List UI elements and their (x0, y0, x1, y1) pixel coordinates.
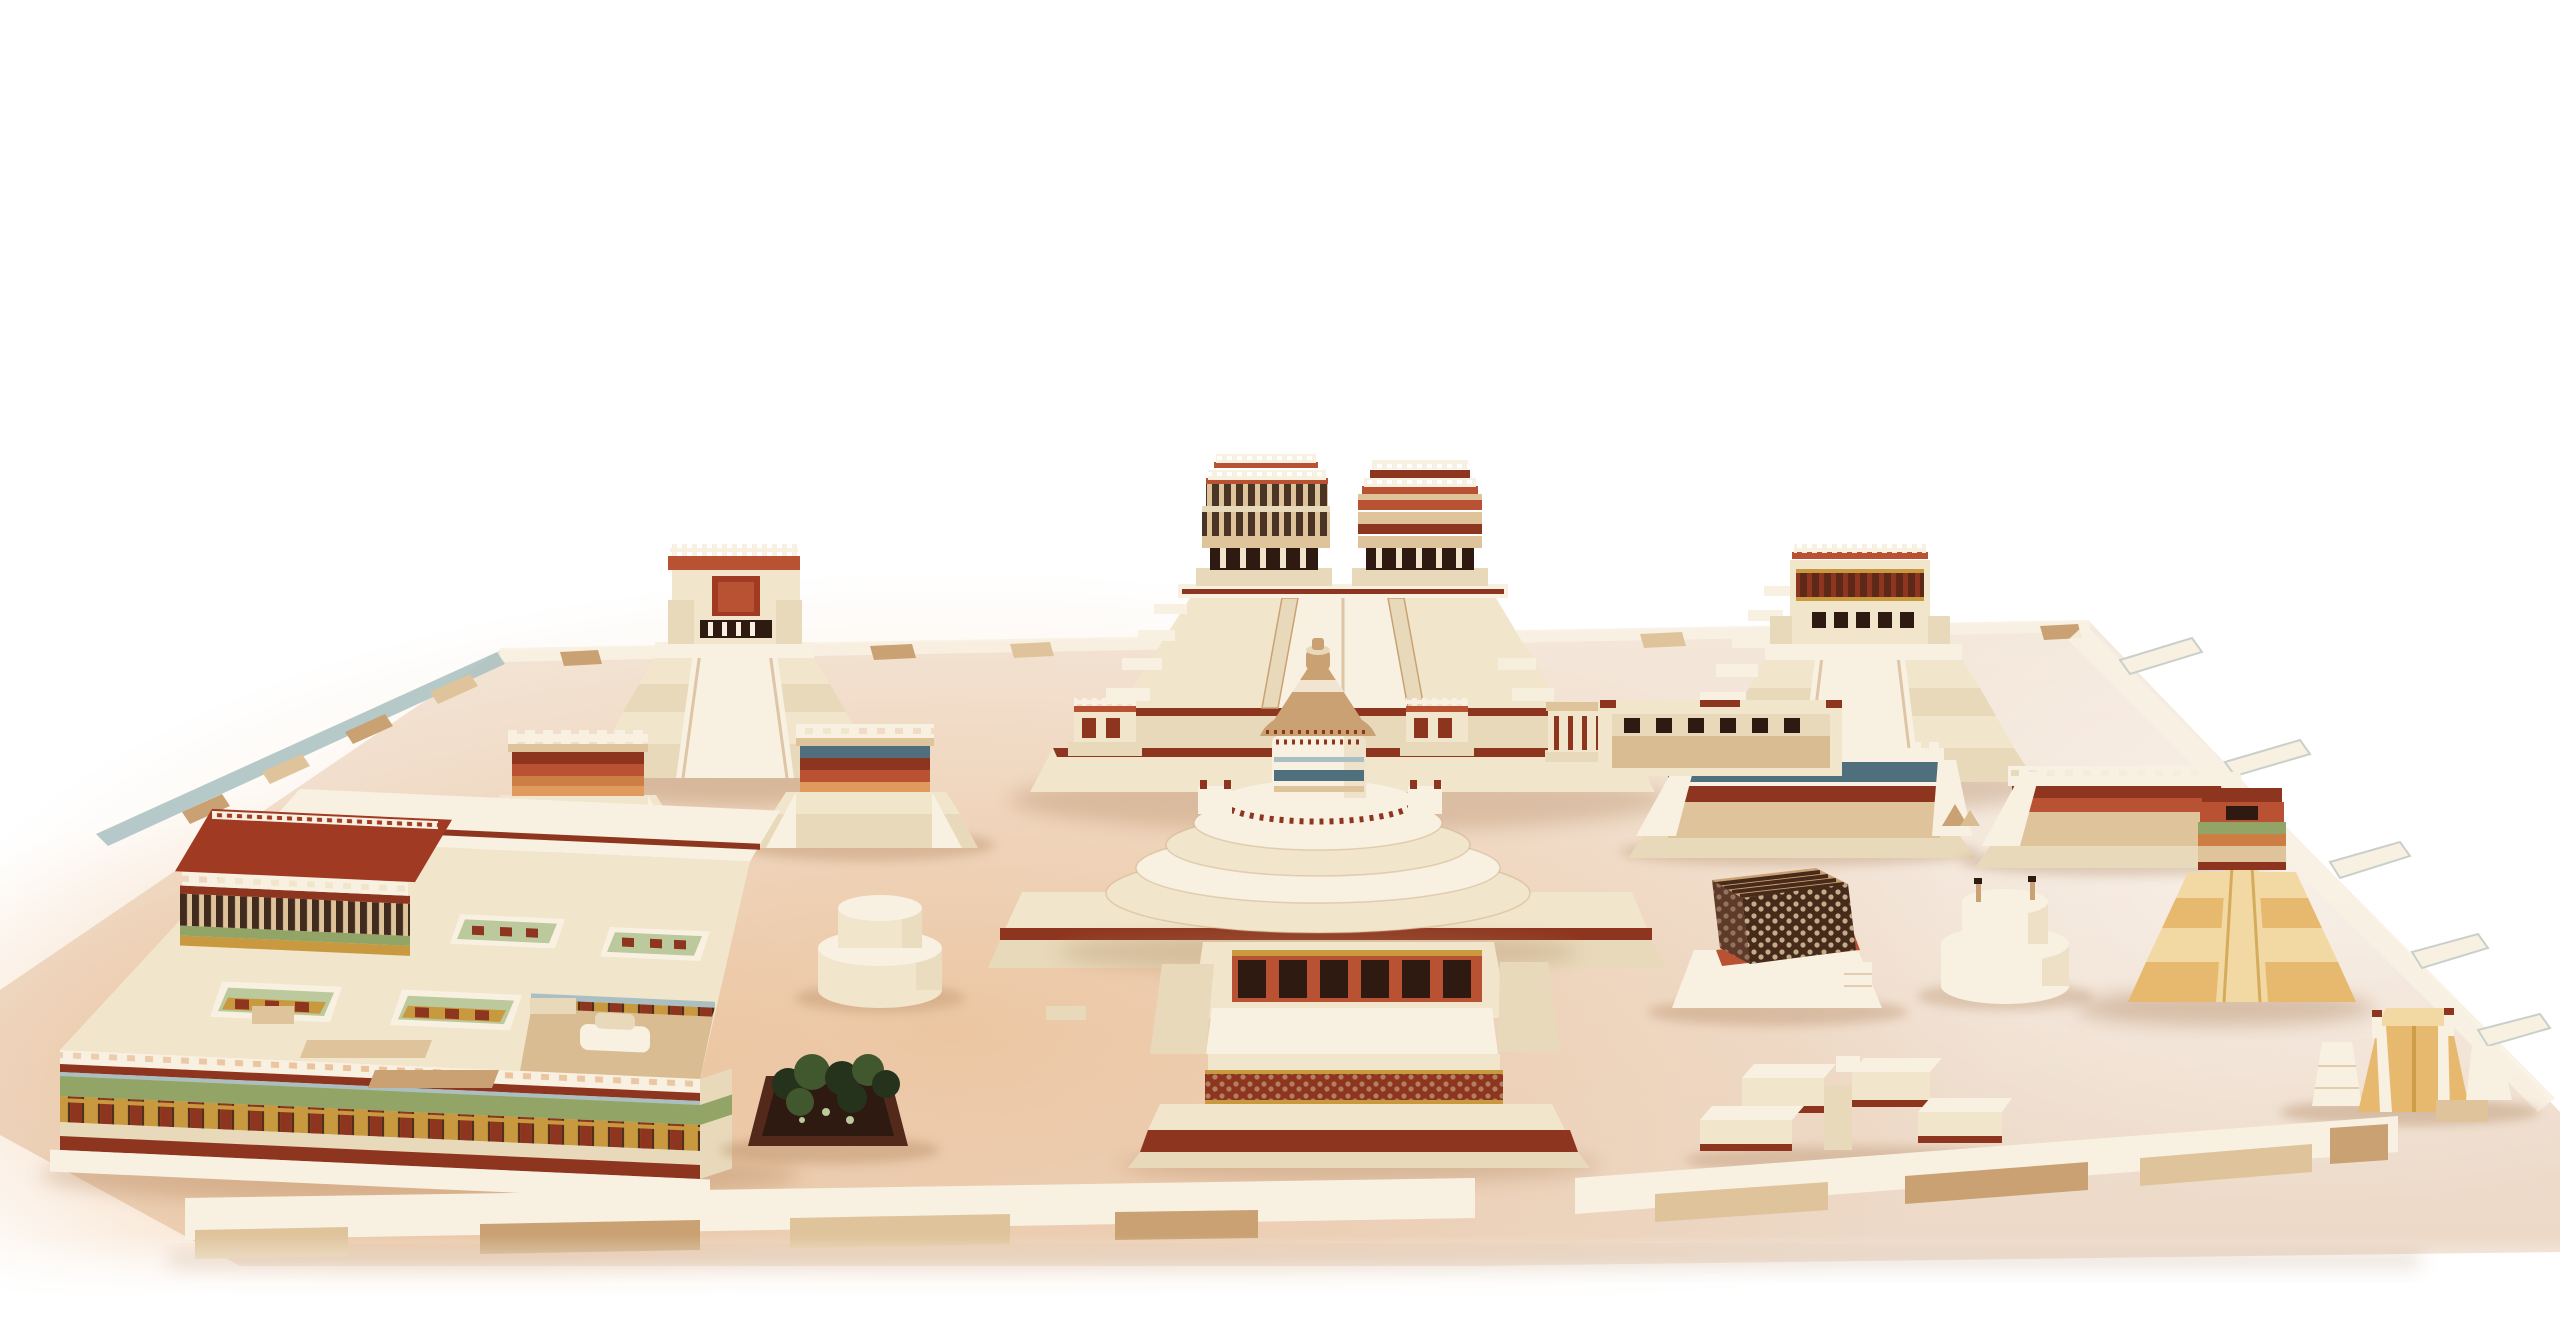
precinct-model-photo (0, 0, 2560, 1338)
drum (1272, 736, 1366, 798)
golden-pyramid-temple (2198, 788, 2286, 870)
left-pyramid-temple (668, 544, 802, 644)
cluster-block (1918, 1098, 2012, 1143)
roof-courtyard (390, 989, 522, 1031)
red-band-shrine (1352, 460, 1488, 586)
right-pyramid-temple (1770, 544, 1950, 644)
cluster-block (1700, 1106, 1804, 1151)
roof-courtyard (600, 927, 710, 962)
rack-stair (1844, 962, 1872, 998)
base-shrine-right (1400, 698, 1474, 756)
roof-courtyard (450, 914, 565, 949)
cluster-block (1742, 1064, 1836, 1113)
bottom-white-fade (0, 1235, 2560, 1338)
skull-frieze-parapet (1205, 1054, 1503, 1104)
sunken-court (1598, 700, 1842, 776)
cluster-block (1852, 1058, 1942, 1107)
model-photo-stage (0, 0, 2560, 1338)
base-shrine-left (1068, 698, 1142, 756)
blue-slat-shrine (1196, 454, 1332, 586)
